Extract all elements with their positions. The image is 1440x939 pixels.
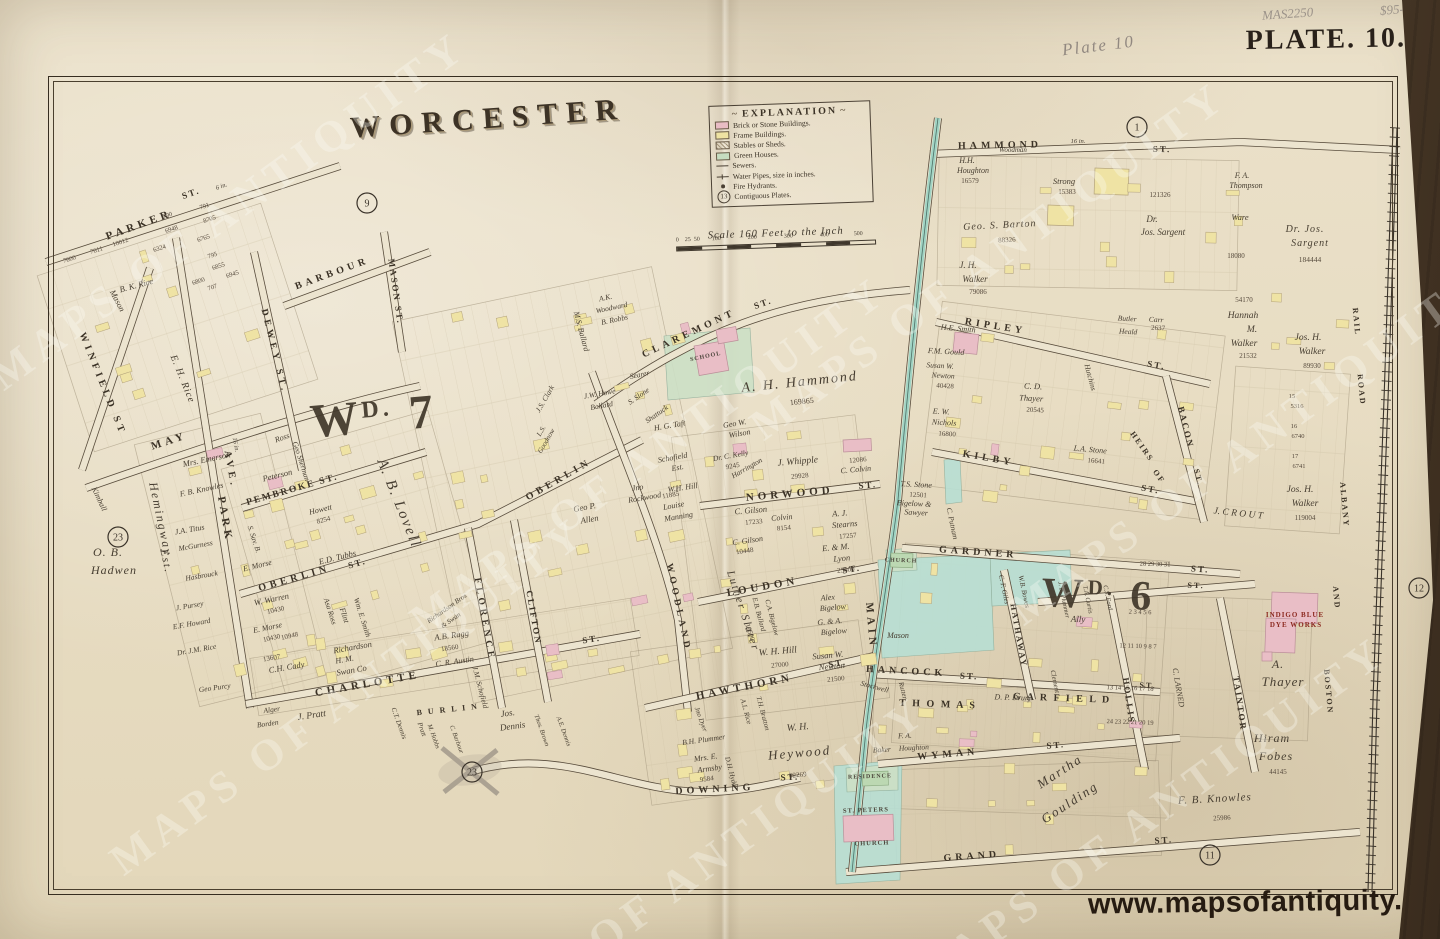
brick-building — [959, 739, 974, 747]
frame-building — [752, 469, 763, 480]
owner-label: Alger — [262, 704, 281, 715]
legend-swatch-hatch-icon — [716, 142, 730, 150]
street-label: ST. — [1046, 739, 1065, 751]
lot-number: 79086 — [969, 288, 987, 296]
owner-label: H.H. — [958, 156, 975, 165]
owner-label: A. — [1271, 657, 1284, 671]
street-label: AND — [1331, 586, 1342, 610]
lot-number: 121326 — [1150, 191, 1172, 199]
scale-tick-label: 400 — [820, 232, 829, 238]
frame-building — [815, 780, 825, 789]
owner-label: Dr. Jos. — [1285, 224, 1325, 235]
contiguous-plate-number: 12 — [1409, 578, 1429, 598]
owner-label: Butler — [1118, 314, 1137, 324]
frame-building — [1271, 343, 1279, 350]
frame-building — [1004, 763, 1015, 774]
owner-label: Walker — [1292, 499, 1319, 509]
owner-label: Dennis — [498, 719, 526, 733]
owner-label: Susan W. — [926, 360, 954, 370]
lot-number: 6740 — [1292, 433, 1305, 440]
owner-label: F.M. Gould — [927, 346, 966, 357]
street-label: ST. — [181, 185, 202, 201]
frame-building — [657, 654, 669, 664]
frame-building — [1206, 232, 1217, 243]
owner-label: F. A. — [897, 731, 912, 741]
owner-label: A. H. Hammond — [740, 369, 859, 396]
svg-text:1: 1 — [1135, 123, 1140, 134]
svg-text:11: 11 — [1205, 851, 1215, 862]
lot-number: 28 29 30 31 — [1140, 560, 1171, 568]
frame-building — [480, 474, 488, 482]
street-label: ST. — [753, 295, 774, 311]
owner-label: Walker — [1299, 347, 1326, 357]
frame-building — [1005, 845, 1013, 855]
owner-label: Alex — [819, 592, 835, 602]
owner-label: Colvin — [771, 512, 793, 523]
frame-building — [1107, 402, 1121, 410]
owner-label: Sawyer — [904, 507, 929, 517]
frame-building — [1336, 319, 1349, 328]
frame-building — [878, 725, 886, 734]
frame-building — [455, 499, 464, 509]
owner-label: C. Colvin — [840, 464, 871, 476]
svg-text:23: 23 — [467, 768, 477, 779]
legend-swatch-plate-icon: 13 — [717, 190, 730, 203]
lot-number: 16800 — [938, 430, 956, 439]
owner-label: Mason — [886, 631, 909, 640]
frame-building — [844, 583, 856, 594]
brick-building — [971, 731, 977, 737]
owner-label: C. Putnam — [945, 507, 961, 541]
seller-website-url: www.mapsofantiquity.com — [1088, 883, 1440, 921]
legend-item-label: Green Houses. — [734, 150, 779, 161]
lot-number: 54170 — [1235, 296, 1253, 304]
scale-tick-label: 300 — [784, 233, 793, 239]
legend-item-label: Sewers. — [732, 161, 756, 171]
brick-building — [546, 644, 560, 656]
owner-label: Heald — [1118, 326, 1138, 336]
lot-number: 62269 — [789, 770, 808, 780]
lot-number: 29928 — [791, 471, 810, 481]
lot-number: 18080 — [1227, 252, 1245, 260]
scanned-map-photo: PARKERST.6 in.WINFIELD STMAYPARKAVE.16 i… — [0, 0, 1440, 939]
frame-building — [981, 333, 995, 343]
frame-building — [1000, 484, 1007, 490]
svg-text:12: 12 — [1414, 584, 1424, 595]
frame-building — [1128, 184, 1141, 192]
frame-building — [1138, 400, 1148, 409]
lot-number: 169865 — [789, 396, 814, 407]
frame-building — [528, 530, 543, 544]
frame-building — [1005, 266, 1014, 274]
frame-building — [1094, 168, 1129, 195]
chapel-lot — [944, 458, 962, 504]
frame-building — [1129, 497, 1138, 504]
owner-label: Houghton — [956, 166, 989, 175]
frame-building — [315, 638, 326, 651]
scale-tick-label: 200 — [748, 235, 757, 241]
contiguous-plate-number: 11 — [1200, 845, 1220, 865]
frame-building — [1058, 706, 1074, 713]
contiguous-plate-number: 23 — [108, 527, 128, 547]
owner-label: F. A. — [1234, 171, 1250, 180]
lot-number: 17233 — [745, 517, 764, 527]
owner-label: Kimball — [89, 484, 109, 513]
owner-label: Dr. — [1145, 214, 1157, 224]
frame-building — [1020, 264, 1029, 270]
owner-label: Jos. Sargent — [1141, 227, 1186, 237]
lot-number: 16579 — [961, 177, 979, 185]
lot-number: 25500 — [837, 565, 856, 575]
brick-building — [843, 814, 894, 842]
lot-number: 6741 — [1293, 463, 1306, 470]
legend-swatch-water-icon — [717, 176, 729, 177]
owner-label: E. W. — [931, 407, 949, 417]
owner-label: Walker — [1231, 339, 1258, 349]
legend-item-label: Fire Hydrants. — [733, 180, 777, 191]
owner-label: Thos. Brown — [532, 714, 550, 747]
owner-label: Fobes — [1258, 749, 1293, 763]
frame-building — [1165, 271, 1174, 282]
frame-building — [1040, 446, 1055, 460]
frame-building — [1135, 767, 1148, 776]
lot-number: 12 11 10 9 8 7 — [1119, 642, 1157, 650]
lot-number: 119004 — [1295, 514, 1316, 522]
frame-building — [1091, 659, 1099, 671]
owner-label: Jos. — [500, 707, 516, 719]
frame-building — [1040, 188, 1051, 194]
owner-label: Thayer — [1262, 674, 1305, 689]
frame-building — [498, 600, 511, 612]
owner-label: 16 in. — [1071, 138, 1086, 145]
lot-number: 27000 — [771, 660, 790, 670]
street-label: ST. — [1187, 581, 1205, 591]
frame-building — [516, 667, 527, 677]
lot-number: 12086 — [849, 455, 868, 465]
owner-label: Jos. H. — [1287, 485, 1314, 495]
legend-swatch-green-icon — [716, 152, 730, 160]
owner-label: Walker — [962, 274, 988, 284]
lot-number: 25986 — [1213, 814, 1231, 823]
frame-building — [1047, 205, 1074, 226]
owner-label: Borden — [256, 718, 279, 730]
frame-building — [962, 237, 976, 247]
owner-label: CHURCH — [854, 839, 889, 847]
frame-building — [306, 634, 316, 646]
frame-building — [1098, 724, 1105, 730]
lot-number: 21532 — [1239, 352, 1257, 360]
owner-label: INDIGO BLUE — [1266, 611, 1324, 619]
frame-building — [936, 728, 948, 734]
frame-building — [787, 431, 802, 440]
owner-label: Ross — [273, 431, 291, 445]
scale-tick-label: 500 — [854, 231, 863, 237]
owner-label: Pratt — [415, 720, 428, 738]
owner-label: C. Barbour — [448, 724, 465, 755]
frame-building — [920, 593, 932, 604]
owner-label: Hadwen — [90, 563, 137, 577]
owner-label: Strong — [1053, 176, 1075, 186]
legend-rows: Brick or Stone Buildings.Frame Buildings… — [715, 115, 868, 202]
frame-building — [451, 471, 465, 484]
owner-label: Houghton — [898, 742, 930, 753]
svg-text:23: 23 — [113, 533, 123, 544]
legend-item-label: Contiguous Plates. — [734, 190, 791, 201]
street-label: ST. — [1191, 563, 1210, 574]
frame-building — [988, 801, 995, 807]
lot-number: 2637 — [1151, 324, 1166, 333]
frame-building — [1028, 658, 1042, 667]
frame-building — [987, 678, 1002, 688]
scale-tick-label: 100 — [712, 236, 721, 242]
lot-number: 44145 — [1269, 768, 1287, 776]
frame-building — [1106, 257, 1116, 267]
handwritten-price: $95- — [1379, 1, 1404, 19]
street-label: ROAD — [1356, 374, 1368, 406]
brick-building — [716, 327, 738, 344]
owner-label: A.E. Dennis — [554, 715, 572, 748]
lot-number: 16641 — [1087, 456, 1106, 466]
frame-building — [635, 529, 648, 542]
frame-building — [498, 641, 513, 653]
frame-building — [1033, 732, 1040, 742]
frame-building — [1324, 362, 1335, 369]
boston-albany-railroad — [1365, 128, 1400, 892]
owner-label: A. J. — [831, 507, 848, 518]
legend-swatch-sewer-icon — [716, 166, 728, 167]
owner-label: J. Pratt — [297, 709, 327, 723]
brick-building — [843, 439, 872, 452]
street-label: RAIL — [1351, 307, 1362, 336]
frame-building — [714, 645, 721, 652]
frame-building — [1183, 458, 1194, 466]
svg-text:9: 9 — [365, 199, 370, 210]
owner-label: D. P. Drury — [993, 692, 1032, 702]
legend-item-label: Stables or Sheds. — [734, 139, 786, 150]
owner-label: Hiram — [1253, 731, 1290, 745]
frame-building — [1271, 293, 1281, 302]
contiguous-plate-number: 9 — [357, 193, 377, 213]
frame-building — [1138, 499, 1147, 509]
lot-number: 21500 — [827, 674, 846, 684]
frame-building — [1226, 190, 1239, 195]
map-legend: EXPLANATION Brick or Stone Buildings.Fra… — [708, 100, 873, 207]
owner-label: C.T. Dennis — [389, 706, 408, 740]
frame-building — [676, 708, 692, 720]
frame-building — [972, 395, 982, 403]
owner-label: DYE WORKS — [1270, 621, 1322, 629]
frame-building — [982, 490, 998, 503]
owner-label: Baker — [873, 745, 891, 755]
lot-number: 20545 — [1026, 406, 1044, 415]
street-label: ST. — [858, 479, 877, 491]
owner-label: CHURCH — [885, 557, 918, 564]
owner-label: C. D. — [1024, 381, 1043, 392]
frame-building — [1027, 800, 1035, 806]
owner-label: Jos. H. — [1295, 333, 1322, 343]
street-label: B U R L I N — [416, 702, 479, 718]
contiguous-plate-number: 1 — [1127, 117, 1147, 137]
brick-building — [1262, 652, 1272, 661]
street-label: ST. — [1154, 834, 1173, 845]
owner-label: Hannah — [1227, 311, 1259, 321]
street-label: ST. — [960, 671, 979, 682]
scale-tick-label: 25 — [685, 237, 691, 243]
scale-tick-label: 50 — [694, 237, 700, 243]
owner-label: F. B. Knowles — [1177, 791, 1252, 807]
owner-label: Ware — [1231, 212, 1249, 222]
lot-number: 15383 — [1058, 188, 1076, 196]
legend-swatch-hydrant-icon — [721, 185, 725, 189]
owner-label: Woodman — [999, 146, 1027, 154]
street-label: ST. — [1153, 144, 1172, 154]
lot-number: 88326 — [998, 236, 1016, 245]
frame-building — [1100, 242, 1109, 252]
owner-label: Newton — [930, 370, 955, 380]
frame-building — [1052, 783, 1066, 791]
lot-number: 15 — [1289, 393, 1296, 400]
lot-number: 89930 — [1303, 362, 1321, 370]
owner-label: J. H. — [959, 260, 976, 270]
frame-building — [405, 648, 421, 659]
lot-number: 5316 — [1291, 403, 1305, 410]
lot-number: 184444 — [1299, 255, 1322, 264]
frame-building — [926, 799, 937, 808]
owner-label: Lyon — [832, 552, 851, 564]
frame-building — [1019, 465, 1030, 476]
frame-building — [931, 563, 938, 575]
owner-label: M. — [1246, 325, 1257, 335]
map-paper-sheet: PARKERST.6 in.WINFIELD STMAYPARKAVE.16 i… — [0, 0, 1440, 939]
frame-building — [660, 778, 670, 790]
lot-number: 17 — [1292, 453, 1299, 460]
owner-label: Sargent — [1291, 238, 1329, 249]
frame-building — [451, 311, 463, 322]
legend-item-label: Frame Buildings. — [733, 129, 786, 140]
owner-label: 6 in. — [215, 181, 229, 192]
lot-number: 17257 — [839, 531, 858, 541]
scale-tick-label: 0 — [676, 237, 679, 243]
frame-building — [812, 527, 824, 537]
street-label: BOSTON — [1322, 669, 1335, 715]
owner-label: Thompson — [1229, 181, 1262, 190]
frame-building — [588, 649, 598, 657]
frame-building — [496, 316, 508, 328]
legend-swatch-yellow-icon — [715, 131, 729, 139]
lot-number: 16 — [1291, 423, 1298, 430]
owner-label: Nichols — [931, 417, 957, 427]
owner-label: Thayer — [1019, 392, 1044, 403]
owner-label: T.S. Stone — [900, 479, 933, 490]
lot-number: 40428 — [936, 382, 954, 391]
legend-swatch-pink-icon — [715, 121, 729, 129]
owner-label: W. H. — [786, 721, 809, 734]
lot-number: 8154 — [777, 523, 792, 532]
owner-label: M. Hobbs — [425, 722, 441, 750]
plate-number-label: PLATE. 10. — [1216, 22, 1407, 57]
